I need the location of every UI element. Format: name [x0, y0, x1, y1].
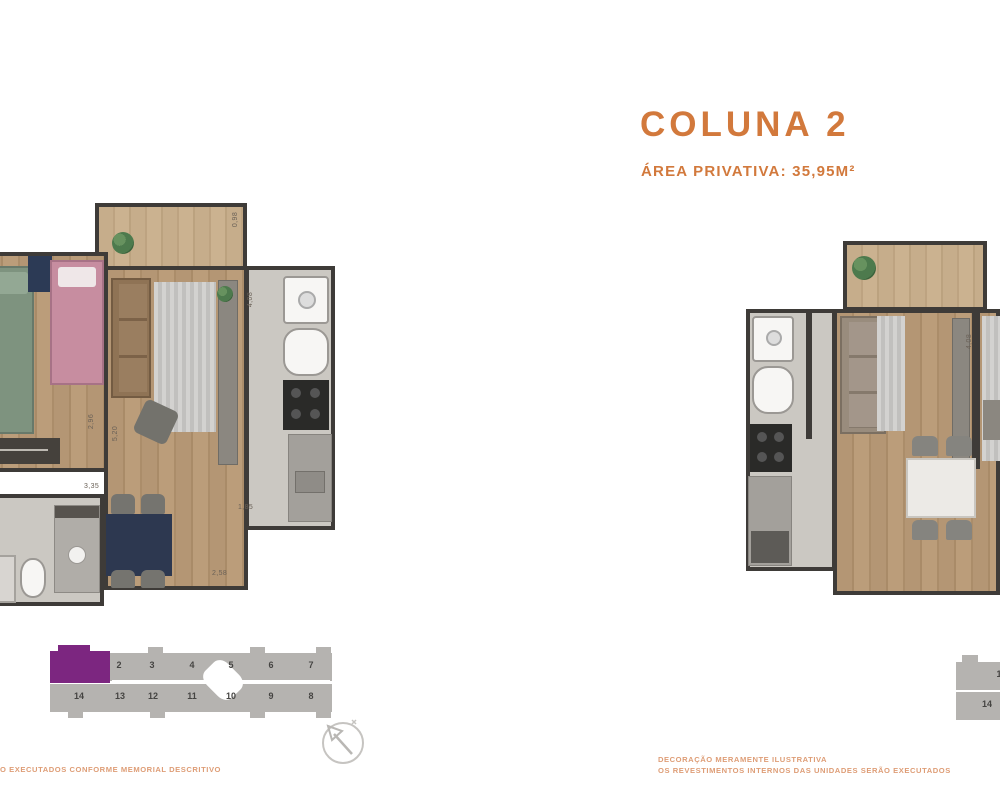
dining-table: [106, 514, 172, 576]
keyplan-unit: 9: [260, 691, 282, 701]
dining-table: [906, 458, 976, 518]
keyplan-partial: 1 14: [950, 640, 1000, 730]
plant-icon: [112, 232, 134, 254]
dining-chair: [912, 520, 938, 540]
bed-green-pillow: [0, 272, 28, 294]
wall-divider: [972, 309, 980, 469]
washing-machine: [283, 276, 329, 324]
dining-chair: [111, 494, 135, 514]
washer-door: [298, 291, 316, 309]
keyplan-unit: 14: [976, 699, 998, 709]
keyplan-unit: 13: [109, 691, 131, 701]
burner: [774, 452, 784, 462]
keyplan-highlighted-unit: [50, 651, 110, 683]
dim-label: 0,98: [232, 212, 239, 227]
dim-label: 4,08: [966, 334, 973, 349]
burner: [310, 409, 320, 419]
footer-note-left: ÃO EXECUTADOS CONFORME MEMORIAL DESCRITI…: [0, 765, 221, 774]
keyplan-tab: [316, 647, 331, 654]
keyplan-unit: 3: [141, 660, 163, 670]
keyplan-highlighted-tab: [58, 645, 90, 653]
dim-label: 4,08: [247, 292, 254, 307]
burner: [757, 452, 767, 462]
washer-door: [766, 330, 782, 346]
burner: [291, 409, 301, 419]
dim-label: 5,20: [112, 426, 119, 441]
keyplan-tab: [250, 647, 265, 654]
keyplan-unit: 2: [108, 660, 130, 670]
footer-note-right-2: OS REVESTIMENTOS INTERNOS DAS UNIDADES S…: [658, 766, 951, 775]
dim-label: 2,58: [212, 570, 227, 577]
keyplan-unit: 4: [181, 660, 203, 670]
keyplan-unit: 10: [220, 691, 242, 701]
laundry-tub: [283, 328, 329, 376]
toilet: [752, 366, 794, 414]
kitchen-counter: [288, 434, 332, 522]
brochure-page: COLUNA 2 ÁREA PRIVATIVA: 35,95M²: [0, 0, 1000, 800]
dining-chair: [912, 436, 938, 456]
burner: [774, 432, 784, 442]
washing-machine: [752, 316, 794, 362]
dim-label: 2,96: [88, 414, 95, 429]
keyplan-tab: [148, 647, 163, 654]
vanity-top: [55, 506, 99, 518]
dim-label: 1,85: [238, 504, 253, 511]
keyplan-unit: 6: [260, 660, 282, 670]
sink-bowl: [68, 546, 86, 564]
keyplan-tab: [68, 711, 83, 718]
floorplan-right: 4,08: [700, 0, 1000, 700]
kitchen-counter: [748, 476, 792, 566]
wardrobe: [0, 438, 60, 464]
dim-label: 3,35: [84, 483, 99, 490]
dining-chair: [141, 494, 165, 514]
cooktop: [283, 380, 329, 430]
keyplan-tab: [150, 711, 165, 718]
toilet: [20, 558, 46, 598]
keyplan-unit: 12: [142, 691, 164, 701]
tv-panel: [218, 280, 238, 465]
dining-chair: [111, 570, 135, 588]
keyplan-tab: [250, 711, 265, 718]
keyplan-unit: 14: [68, 691, 90, 701]
wall-divider: [806, 309, 812, 439]
kitchen-sink: [295, 471, 325, 493]
keyplan-unit: 7: [300, 660, 322, 670]
plant-icon: [852, 256, 876, 280]
bed-pink: [50, 260, 104, 385]
nightstand: [28, 256, 52, 292]
burner: [757, 432, 767, 442]
sofa: [111, 278, 151, 398]
plant-icon: [217, 286, 233, 302]
shower-tray: [0, 555, 16, 603]
keyplan-unit: 1: [988, 669, 1000, 679]
keyplan-unit: 5: [220, 660, 242, 670]
cooktop: [750, 424, 792, 472]
bedroom-furniture: [983, 400, 1000, 440]
footer-note-right-1: DECORAÇÃO MERAMENTE ILUSTRATIVA: [658, 755, 827, 764]
burner: [310, 388, 320, 398]
keyplan-unit: 8: [300, 691, 322, 701]
floorplan-left: 0,98 4,08 2,96 5,20 3,35 1,85 2,58: [0, 0, 400, 700]
dining-chair: [946, 436, 972, 456]
wardrobe-handle: [0, 449, 48, 451]
burner: [291, 388, 301, 398]
rug: [877, 316, 905, 431]
keyplan-unit: 11: [181, 691, 203, 701]
dining-chair: [141, 570, 165, 588]
bed-pink-pillow: [58, 267, 96, 287]
fridge: [751, 531, 789, 563]
compass-north-arrow-icon: [316, 710, 372, 770]
dining-chair: [946, 520, 972, 540]
sofa-cushions: [119, 284, 147, 392]
vanity: [54, 505, 100, 593]
